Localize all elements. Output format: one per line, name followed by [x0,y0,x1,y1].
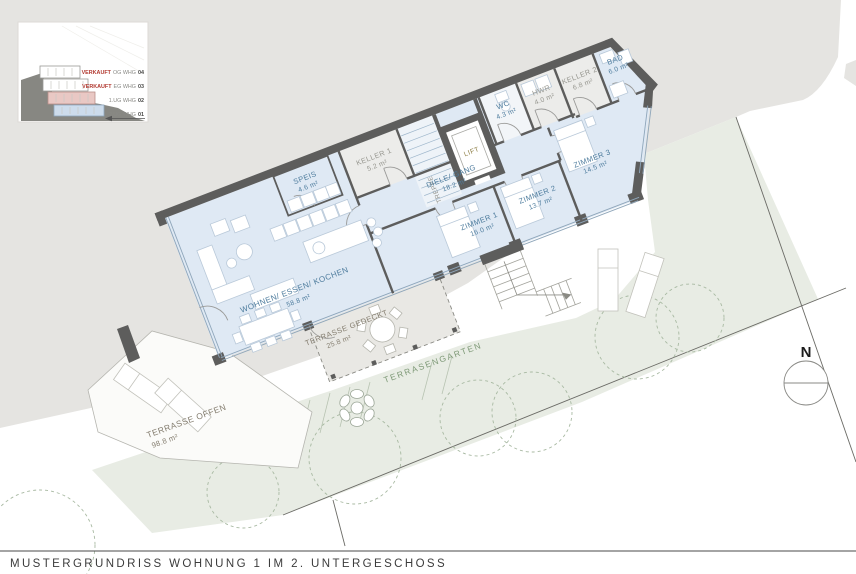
inset-row-1ug: 1.UG WHG02 [109,98,144,104]
inset-row-eg: VERKAUFTEG WHG03 [82,84,144,90]
site-plan-drawing: WOHNEN/ ESSEN/ KOCHEN 58.8 m² SPEIS 4.6 … [0,0,856,574]
north-label: N [801,344,812,361]
inset-floor-2ug [54,105,104,116]
site-plan-page: WOHNEN/ ESSEN/ KOCHEN 58.8 m² SPEIS 4.6 … [0,0,856,574]
section-inset: VERKAUFTOG WHG04 VERKAUFTEG WHG03 1.UG W… [18,22,148,122]
inset-row-og: VERKAUFTOG WHG04 [82,70,144,76]
inset-row-2ug: 2.UG WHG01 [109,112,144,118]
page-title: MUSTERGRUNDRISS WOHNUNG 1 IM 2. UNTERGES… [10,558,447,570]
inset-floor-og [40,66,80,78]
